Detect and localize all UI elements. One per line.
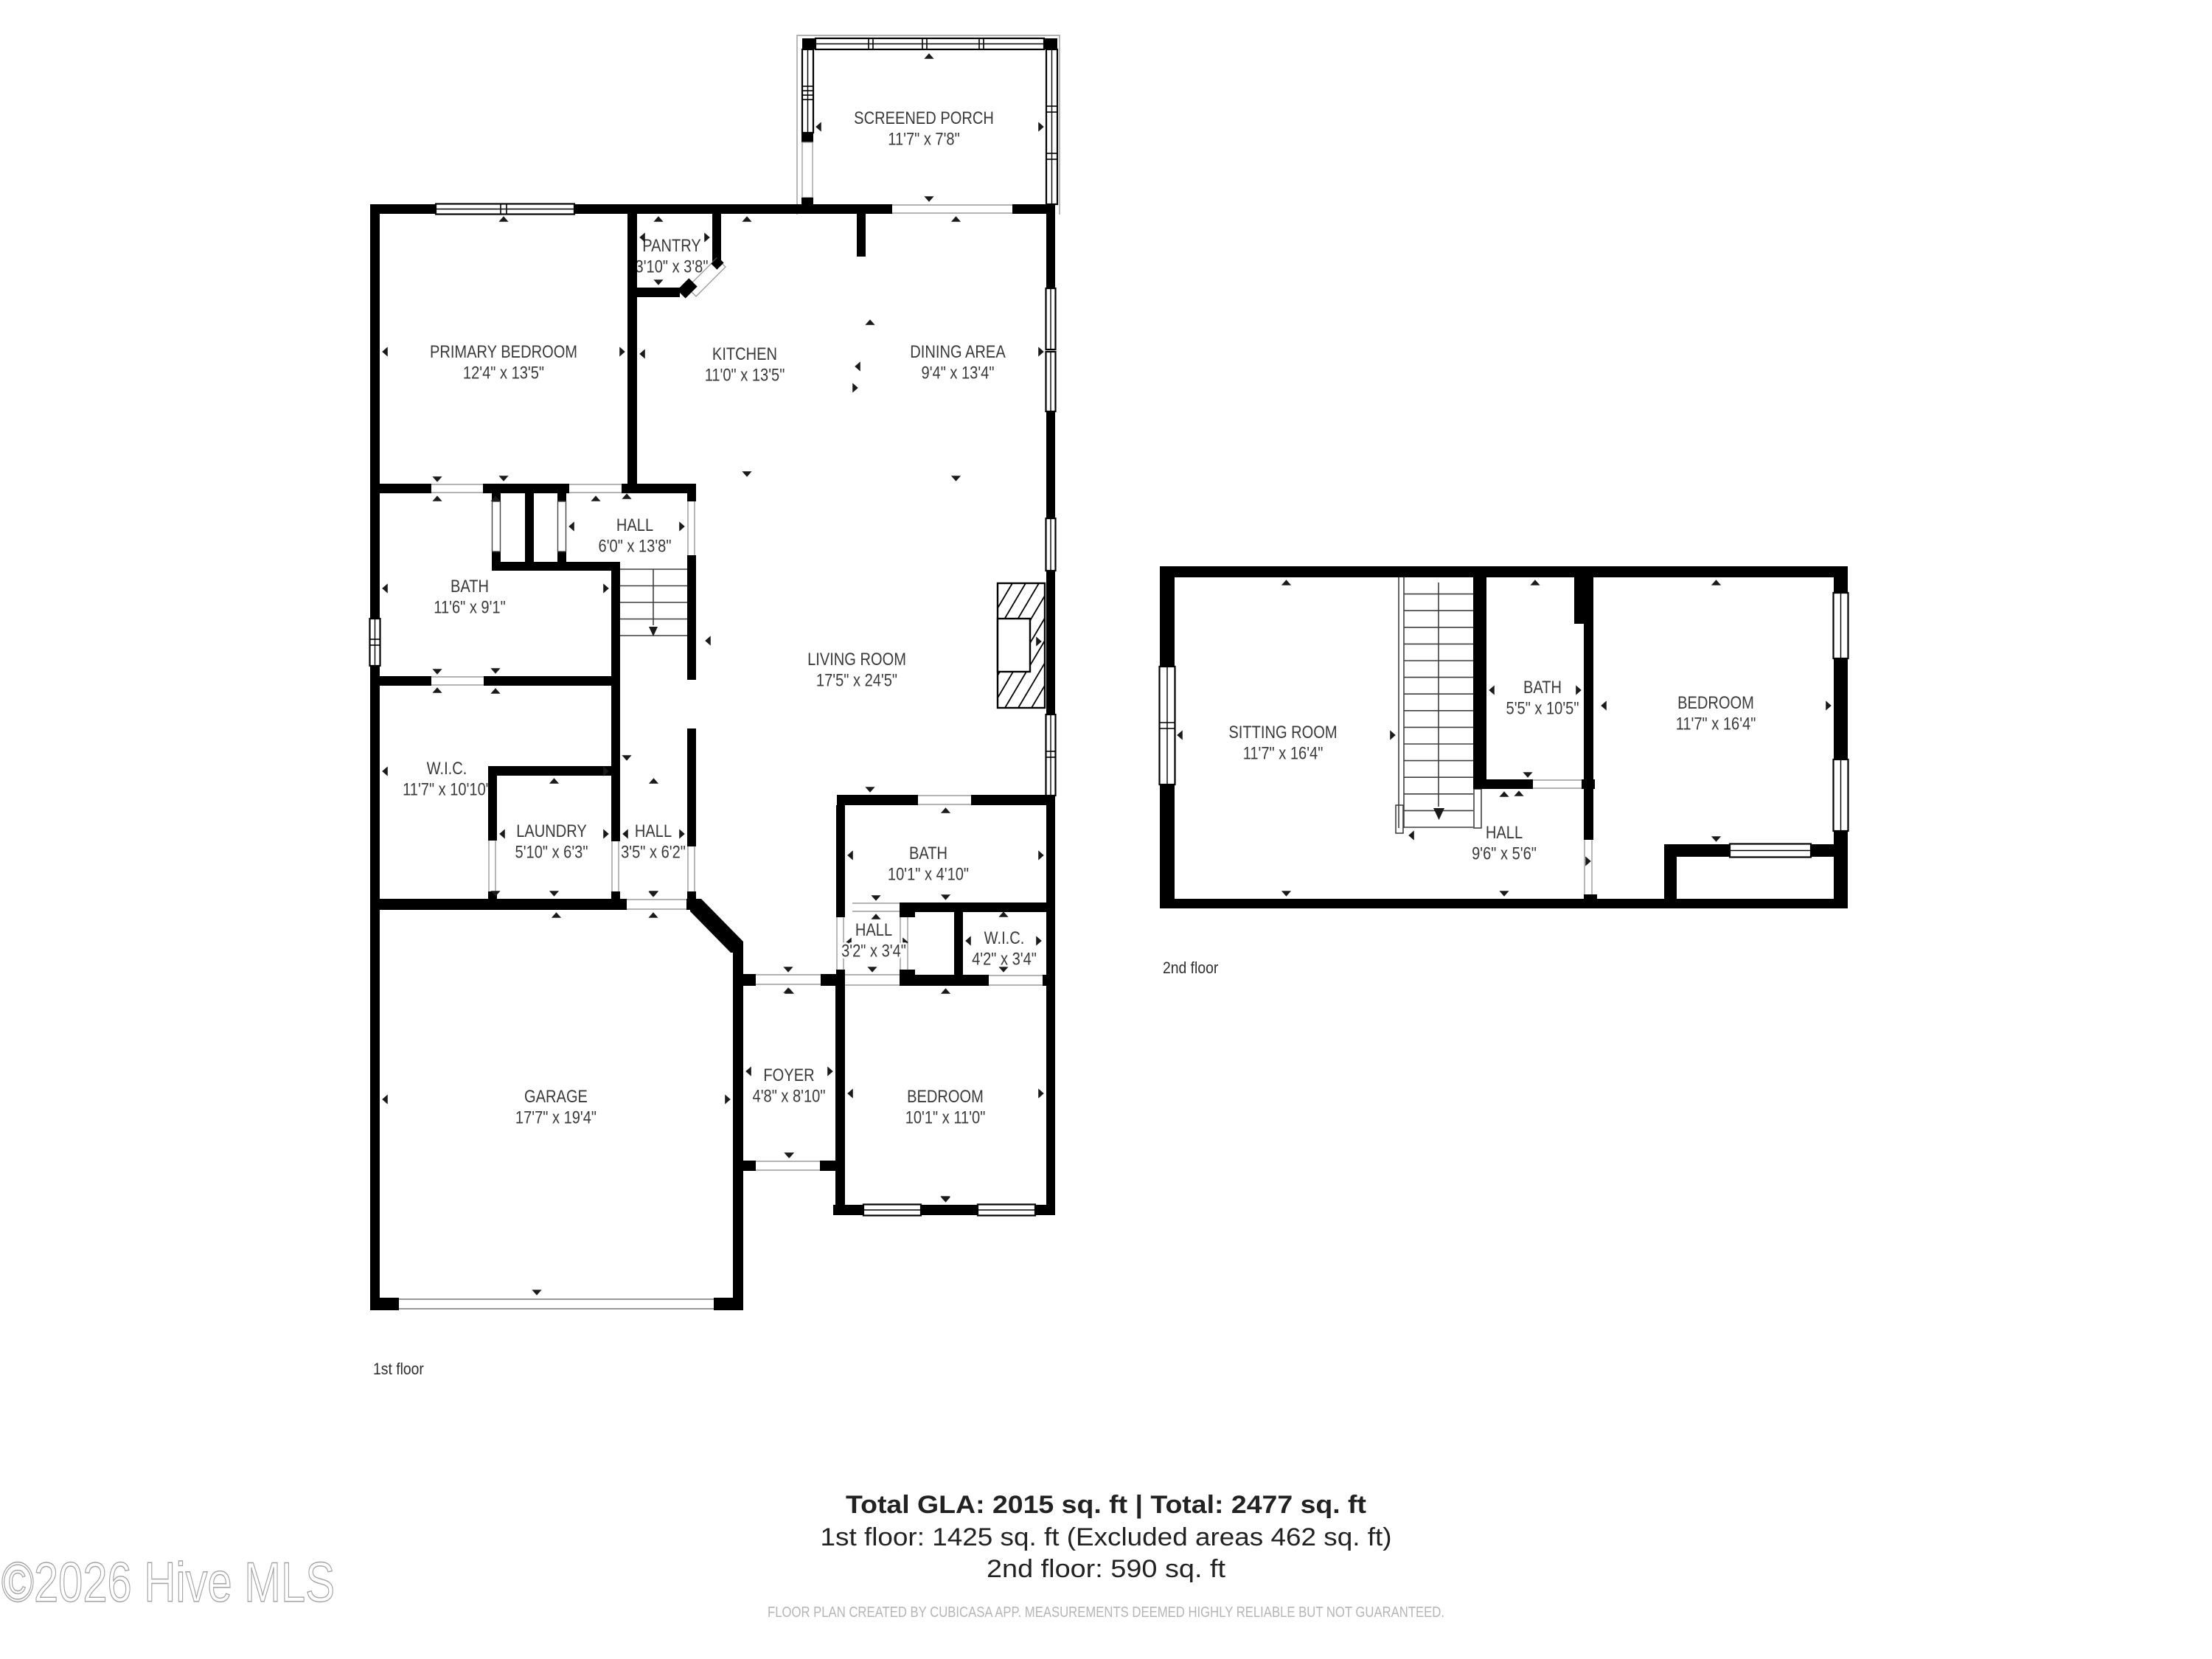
svg-text:KITCHEN11'0" x 13'5": KITCHEN11'0" x 13'5"	[705, 344, 785, 385]
svg-text:FLOOR PLAN CREATED BY CUBICASA: FLOOR PLAN CREATED BY CUBICASA APP. MEAS…	[768, 1604, 1444, 1621]
svg-text:2nd floor: 590 sq. ft: 2nd floor: 590 sq. ft	[987, 1555, 1226, 1583]
svg-text:SITTING ROOM11'7" x 16'4": SITTING ROOM11'7" x 16'4"	[1228, 722, 1337, 763]
svg-text:Total GLA: 2015 sq. ft | Total: Total GLA: 2015 sq. ft | Total: 2477 sq.…	[846, 1491, 1366, 1519]
svg-text:GARAGE17'7" x 19'4": GARAGE17'7" x 19'4"	[515, 1086, 597, 1127]
svg-text:PANTRY3'10" x 3'8": PANTRY3'10" x 3'8"	[636, 235, 709, 276]
svg-text:LIVING ROOM17'5" x 24'5": LIVING ROOM17'5" x 24'5"	[807, 649, 906, 690]
svg-text:DINING AREA9'4" x 13'4": DINING AREA9'4" x 13'4"	[910, 341, 1005, 383]
svg-text:1st floor: 1st floor	[373, 1360, 424, 1378]
svg-text:2nd floor: 2nd floor	[1163, 959, 1218, 977]
svg-text:BEDROOM11'7" x 16'4": BEDROOM11'7" x 16'4"	[1676, 692, 1756, 734]
svg-text:LAUNDRY5'10" x 6'3": LAUNDRY5'10" x 6'3"	[515, 821, 588, 862]
svg-text:BEDROOM10'1" x 11'0": BEDROOM10'1" x 11'0"	[905, 1086, 986, 1127]
svg-text:©2026 Hive MLS: ©2026 Hive MLS	[1, 1551, 335, 1614]
svg-text:1st floor: 1425 sq. ft (Exclud: 1st floor: 1425 sq. ft (Excluded areas 4…	[821, 1523, 1392, 1551]
